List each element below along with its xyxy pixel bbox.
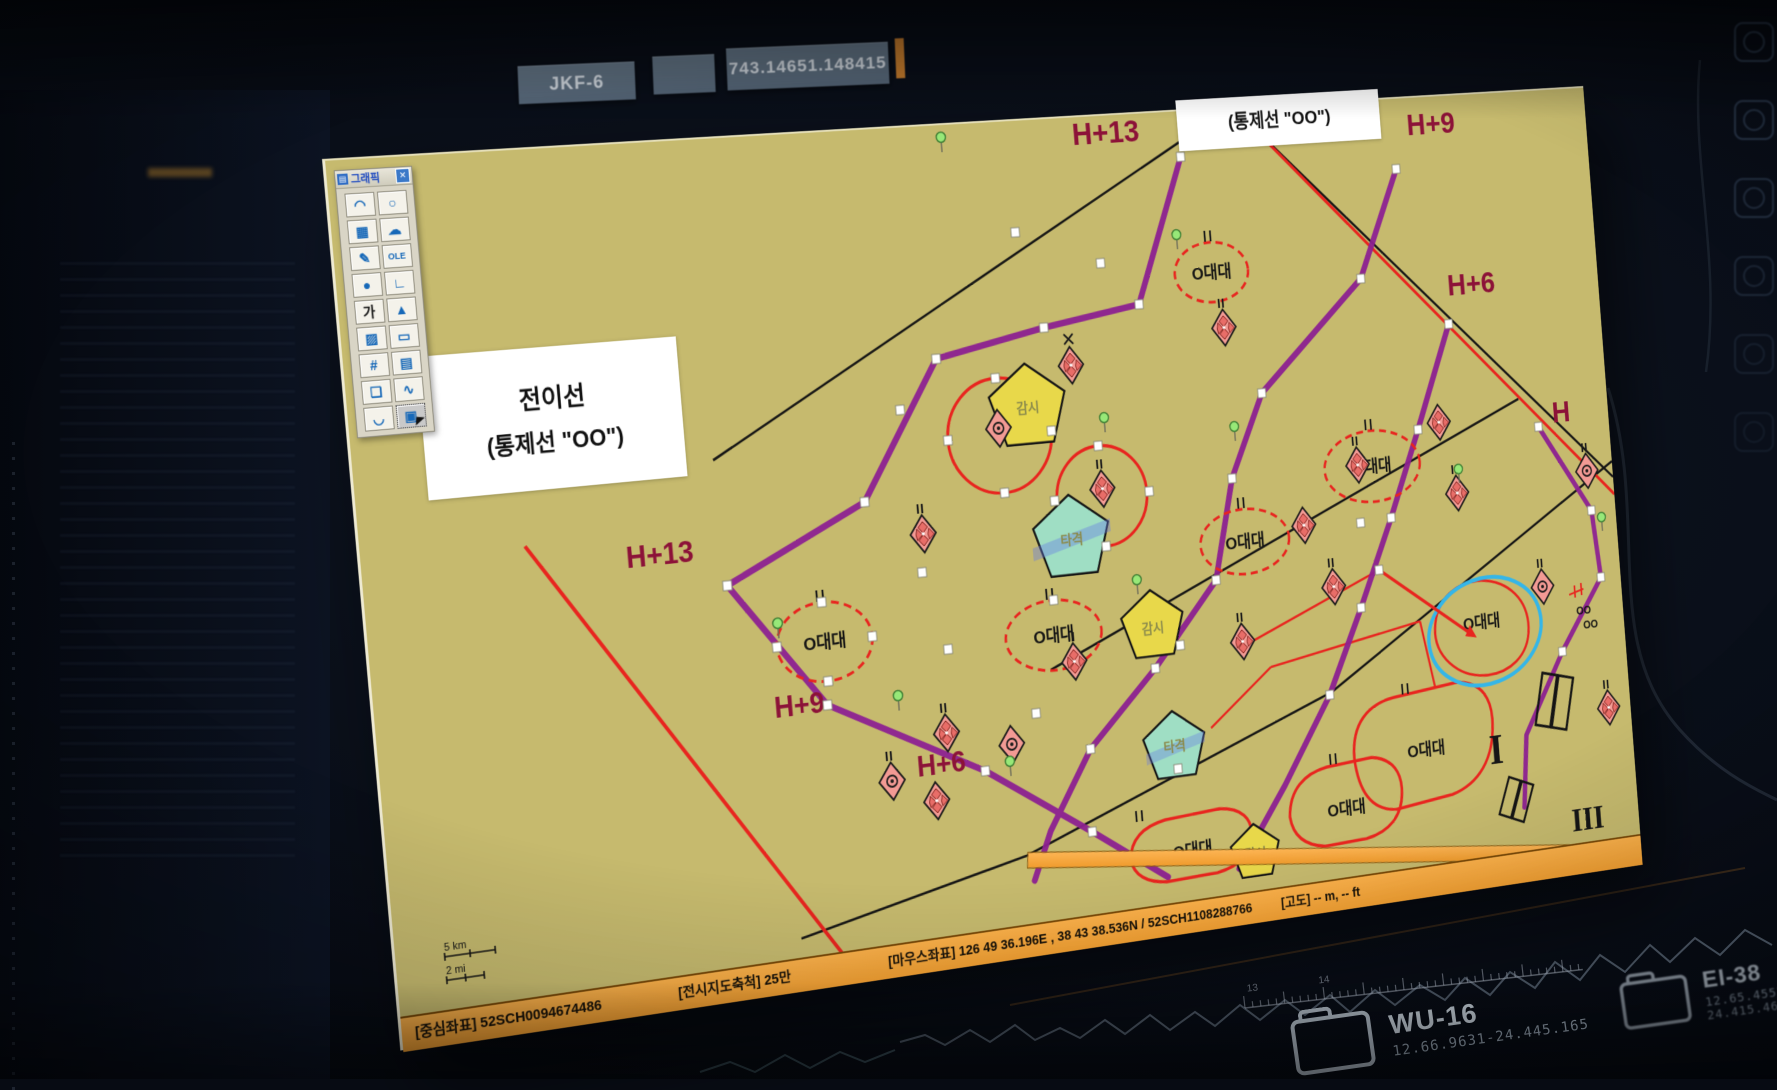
- tool-glyph: ○: [388, 195, 397, 211]
- phase-label: H+13: [625, 535, 695, 575]
- tool-glyph: ❏: [369, 383, 382, 401]
- orange-marker: [895, 38, 906, 78]
- selection-handles[interactable]: [689, 128, 1619, 884]
- unit-area[interactable]: O대대: [1285, 745, 1405, 851]
- obstacle-symbol[interactable]: [1500, 777, 1534, 822]
- tool-glyph: ▭: [397, 327, 411, 345]
- palette-icon: ▤: [337, 174, 349, 186]
- tool-glyph: ◠: [353, 196, 366, 214]
- tool-point[interactable]: ●: [351, 272, 383, 298]
- tool-glyph: ∟: [392, 274, 406, 291]
- tool-step-line[interactable]: ∟: [383, 270, 414, 296]
- phase-label: H: [1551, 395, 1572, 429]
- tool-glyph: ✎: [358, 249, 371, 267]
- ruler-number: 13: [1246, 982, 1259, 994]
- roman-numeral: I: [1488, 726, 1506, 774]
- tool-ellipse[interactable]: ○: [376, 190, 408, 216]
- folder-icon: [1619, 974, 1693, 1031]
- palette-title: 그래픽: [350, 168, 393, 186]
- roman-numeral: III: [1570, 799, 1605, 840]
- phase-label: H+6: [1446, 266, 1496, 303]
- ruler-number: 14: [1318, 974, 1331, 986]
- tab-jkf6[interactable]: JKF-6: [517, 61, 635, 104]
- oo-text: OO: [1576, 603, 1592, 618]
- attack-arrow[interactable]: [1379, 560, 1472, 645]
- scale-km-label: 5 km: [443, 939, 466, 954]
- green-pin[interactable]: [893, 690, 904, 711]
- unit-area[interactable]: O대대: [1349, 673, 1498, 815]
- blank-button[interactable]: [652, 54, 716, 95]
- tool-hatch[interactable]: ▨: [356, 325, 388, 351]
- phase-label: H+9: [773, 686, 826, 725]
- unit-boundaries-dashed[interactable]: O대대 O대대 O대대 O대대 O대대: [745, 217, 1433, 703]
- tool-glyph: ☁: [387, 221, 402, 239]
- green-pin[interactable]: [772, 618, 783, 639]
- unit-ellipse[interactable]: O대대: [1197, 493, 1292, 579]
- tool-glyph: ▦: [355, 223, 369, 241]
- strike-label: 타격: [1060, 530, 1084, 549]
- tool-glyph: ▲: [394, 301, 409, 318]
- green-pin[interactable]: [1005, 756, 1016, 777]
- tool-glyph: OLE: [388, 250, 406, 261]
- green-pin[interactable]: [936, 132, 947, 153]
- tool-rect[interactable]: ▭: [388, 323, 419, 349]
- tool-triangle[interactable]: ▲: [386, 296, 417, 322]
- tool-glyph: ●: [362, 277, 371, 293]
- green-pin[interactable]: [1597, 512, 1606, 531]
- green-pin[interactable]: [1172, 229, 1182, 249]
- coordinate-field[interactable]: 743.14651.148415: [726, 42, 890, 91]
- green-pin[interactable]: [1132, 574, 1142, 595]
- tool-glyph: ▤: [399, 354, 413, 372]
- unit-label: O대대: [1407, 738, 1446, 762]
- scale-bar: 5 km 2 mi: [443, 935, 497, 984]
- enemy-unit-diamond[interactable]: [1210, 298, 1238, 347]
- tool-image[interactable]: ▦: [346, 219, 378, 245]
- tool-glyph: ∿: [402, 380, 415, 398]
- enemy-unit-diamond[interactable]: [877, 750, 907, 802]
- enemy-unit-diamond[interactable]: [1574, 442, 1599, 489]
- unit-label: O대대: [802, 630, 847, 655]
- tool-glyph: 가: [362, 301, 376, 322]
- green-pin[interactable]: [1229, 421, 1239, 441]
- unit-ellipse[interactable]: O대대: [1171, 228, 1250, 305]
- cursor-icon: [415, 417, 424, 426]
- cyan-selection-ring[interactable]: [1417, 561, 1553, 702]
- control-line-text: (통제선 "OO"): [1227, 106, 1331, 133]
- folder-icon: [1290, 1010, 1377, 1077]
- unit-label: O대대: [1327, 797, 1367, 821]
- surveillance-label: 감시: [1016, 398, 1040, 417]
- tool-pen[interactable]: ✎: [349, 245, 381, 271]
- tool-glyph: #: [369, 357, 378, 373]
- tool-blob[interactable]: ☁: [379, 217, 411, 243]
- phase-lines[interactable]: [694, 132, 1619, 938]
- phase-label: H+13: [1071, 114, 1141, 153]
- phase-label: H+6: [916, 745, 967, 783]
- tool-arc2[interactable]: ◡: [363, 405, 395, 431]
- phase-label: H+9: [1405, 106, 1455, 142]
- enemy-unit-diamond[interactable]: [1291, 506, 1317, 544]
- enemy-unit-diamond[interactable]: [1426, 404, 1451, 441]
- palette-close-icon[interactable]: ✕: [395, 168, 411, 184]
- enemy-unit-diamond[interactable]: [908, 503, 937, 554]
- enemy-unit-diamond[interactable]: [1596, 678, 1621, 726]
- green-pin[interactable]: [1099, 412, 1110, 432]
- tool-grid[interactable]: #: [358, 352, 390, 378]
- unit-label: O대대: [1191, 261, 1232, 283]
- tool-arc[interactable]: ◠: [344, 192, 376, 218]
- tool-text[interactable]: 가: [353, 299, 385, 325]
- oo-text: OO: [1583, 617, 1599, 632]
- tool-stamp-selected[interactable]: ▣: [395, 403, 426, 429]
- transition-line-annotation[interactable]: 전이선 (통제선 "OO"): [416, 336, 687, 500]
- tool-callout[interactable]: ❏: [360, 379, 392, 405]
- tool-ole[interactable]: OLE: [381, 243, 413, 269]
- tool-glyph: ◡: [372, 410, 385, 428]
- tool-glyph: ▨: [364, 330, 378, 348]
- enemy-unit-diamond[interactable]: [1088, 458, 1116, 508]
- enemy-unit-diamond[interactable]: [1320, 557, 1347, 606]
- enemy-unit-diamond[interactable]: [1056, 333, 1085, 385]
- enemy-unit-diamond[interactable]: [923, 781, 951, 821]
- tool-curve[interactable]: ∿: [393, 376, 424, 402]
- scale-mi-label: 2 mi: [446, 963, 467, 978]
- tool-table[interactable]: ▤: [390, 350, 421, 376]
- enemy-unit-diamond[interactable]: [1228, 611, 1255, 661]
